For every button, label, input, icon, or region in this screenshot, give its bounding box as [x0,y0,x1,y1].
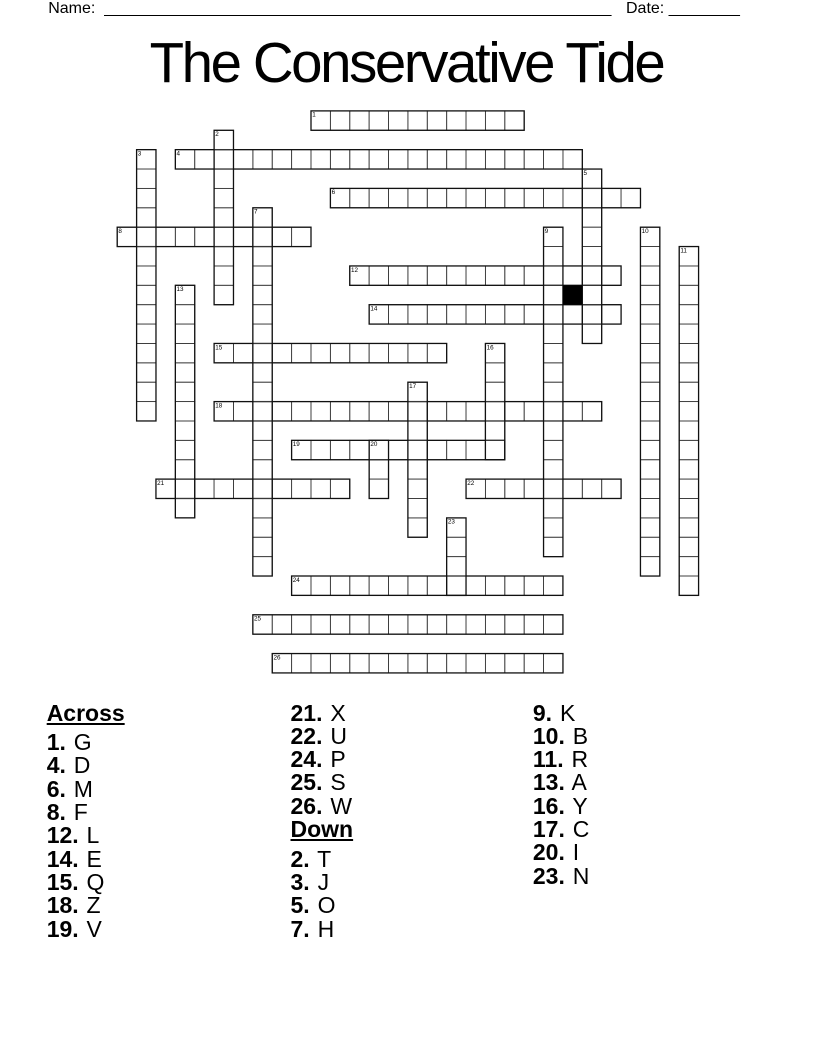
svg-text:1: 1 [312,112,316,119]
svg-text:21: 21 [157,480,165,487]
svg-text:22: 22 [467,480,475,487]
svg-text:7: 7 [254,209,258,216]
svg-text:13: 13 [177,286,185,293]
svg-text:16: 16 [487,344,495,351]
svg-text:26: 26 [273,654,281,661]
svg-text:15: 15 [215,344,223,351]
svg-text:20: 20 [370,441,378,448]
svg-text:11: 11 [680,247,687,254]
svg-text:2: 2 [215,131,219,138]
svg-text:9: 9 [545,228,549,235]
svg-text:4: 4 [177,150,181,157]
svg-text:5: 5 [584,170,588,177]
svg-text:25: 25 [254,616,262,623]
svg-text:19: 19 [293,441,301,448]
svg-text:17: 17 [409,383,417,390]
svg-text:18: 18 [215,402,223,409]
svg-text:8: 8 [118,228,122,235]
svg-text:10: 10 [642,228,650,235]
svg-text:3: 3 [138,150,142,157]
svg-text:12: 12 [351,267,359,274]
svg-text:23: 23 [448,519,456,526]
svg-text:14: 14 [370,306,378,313]
svg-text:24: 24 [293,577,301,584]
svg-text:6: 6 [332,189,336,196]
